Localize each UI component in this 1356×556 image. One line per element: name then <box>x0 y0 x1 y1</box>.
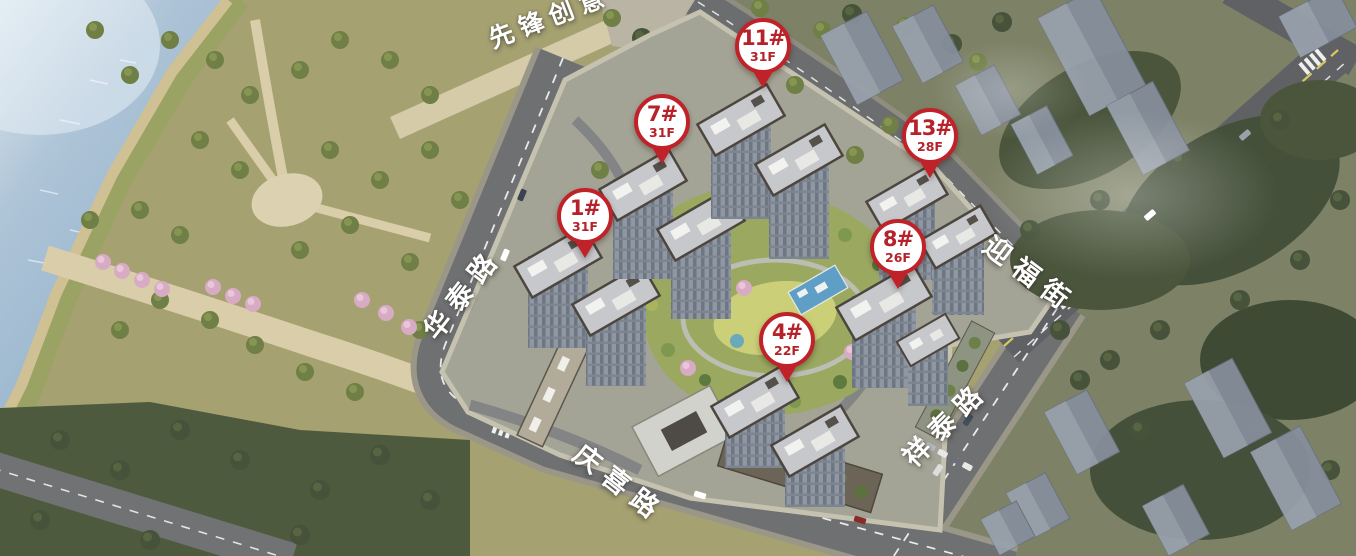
pin-circle: 4# 22F <box>759 312 815 368</box>
building-pin-4[interactable]: 4# 22F <box>758 312 816 382</box>
pin-circle: 8# 26F <box>870 219 926 275</box>
pin-building-number: 8# <box>883 229 913 250</box>
pin-building-number: 7# <box>647 104 677 125</box>
aerial-render-background <box>0 0 1356 556</box>
pin-building-number: 1# <box>570 198 600 219</box>
pin-floor-count: 31F <box>572 220 598 234</box>
building-pin-1[interactable]: 1# 31F <box>556 188 614 258</box>
pin-floor-count: 22F <box>774 344 800 358</box>
pin-floor-count: 31F <box>750 50 776 64</box>
pin-building-number: 4# <box>772 322 802 343</box>
aerial-site-plan: 先锋创意 华泰路 迎福街 祥泰路 庆喜路 1# 31F 7# 31F 11# 3… <box>0 0 1356 556</box>
pin-circle: 13# 28F <box>902 108 958 164</box>
pin-floor-count: 26F <box>885 251 911 265</box>
pin-circle: 7# 31F <box>634 94 690 150</box>
building-pin-13[interactable]: 13# 28F <box>901 108 959 178</box>
pin-floor-count: 28F <box>917 140 943 154</box>
pin-building-number: 13# <box>908 118 952 139</box>
pin-building-number: 11# <box>741 28 785 49</box>
pin-floor-count: 31F <box>649 126 675 140</box>
building-pin-8[interactable]: 8# 26F <box>869 219 927 289</box>
pin-circle: 1# 31F <box>557 188 613 244</box>
building-pin-11[interactable]: 11# 31F <box>734 18 792 88</box>
pin-circle: 11# 31F <box>735 18 791 74</box>
building-pin-7[interactable]: 7# 31F <box>633 94 691 164</box>
